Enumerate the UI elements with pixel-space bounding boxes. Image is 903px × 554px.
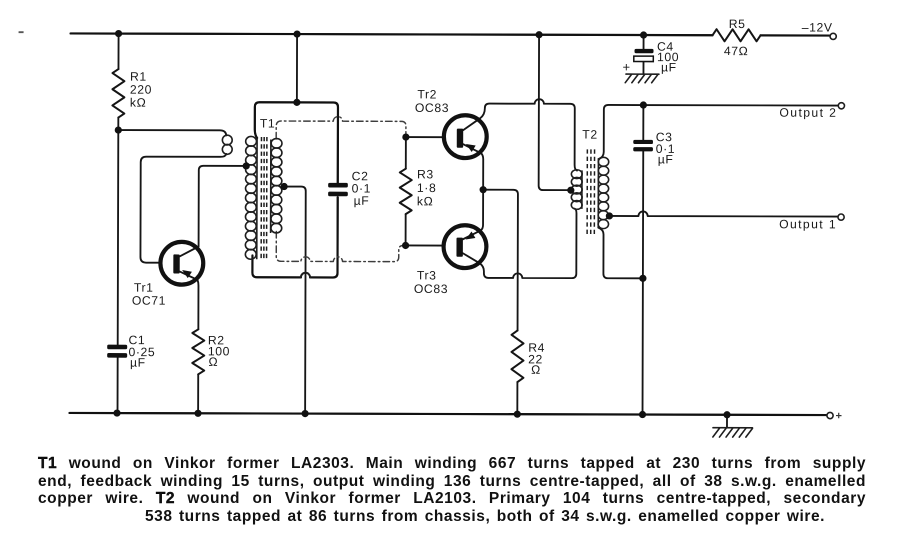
svg-text:µF: µF <box>354 194 370 208</box>
svg-text:–12V: –12V <box>802 20 833 34</box>
svg-text:T2: T2 <box>582 128 597 142</box>
svg-text:kΩ: kΩ <box>417 194 433 208</box>
svg-text:R3: R3 <box>417 167 434 181</box>
svg-text:Tr1: Tr1 <box>134 281 154 295</box>
svg-text:Output 1: Output 1 <box>779 217 837 231</box>
svg-text:OC83: OC83 <box>414 282 448 296</box>
svg-text:OC83: OC83 <box>415 101 449 115</box>
svg-text:µF: µF <box>658 152 674 166</box>
svg-text:47Ω: 47Ω <box>724 44 749 58</box>
svg-text:µF: µF <box>661 60 677 74</box>
svg-text:Output 2: Output 2 <box>779 106 837 120</box>
svg-text:Tr3: Tr3 <box>417 268 437 282</box>
svg-text:R5: R5 <box>729 17 746 31</box>
svg-text:µF: µF <box>130 356 146 370</box>
svg-text:R1: R1 <box>130 70 147 84</box>
svg-text:Ω: Ω <box>531 363 541 377</box>
svg-text:1·8: 1·8 <box>417 181 436 195</box>
svg-text:T1: T1 <box>260 116 275 130</box>
svg-text:Ω: Ω <box>208 355 218 369</box>
svg-text:Tr2: Tr2 <box>417 87 437 101</box>
svg-text:kΩ: kΩ <box>130 96 146 110</box>
svg-text:220: 220 <box>130 83 152 97</box>
svg-text:OC71: OC71 <box>132 294 166 308</box>
svg-text:+: + <box>622 59 630 74</box>
